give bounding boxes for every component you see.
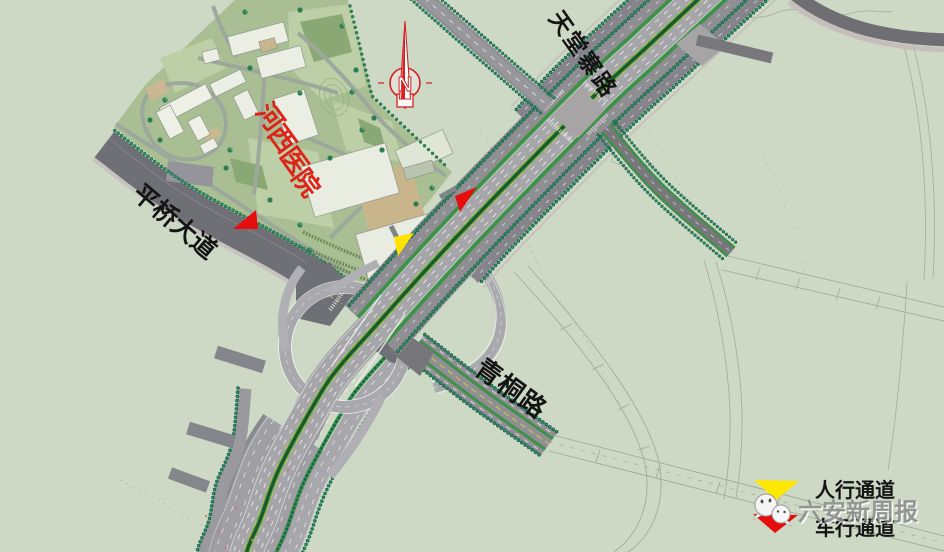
svg-text:N: N bbox=[398, 74, 412, 96]
svg-text:六安新周报: 六安新周报 bbox=[798, 498, 918, 526]
